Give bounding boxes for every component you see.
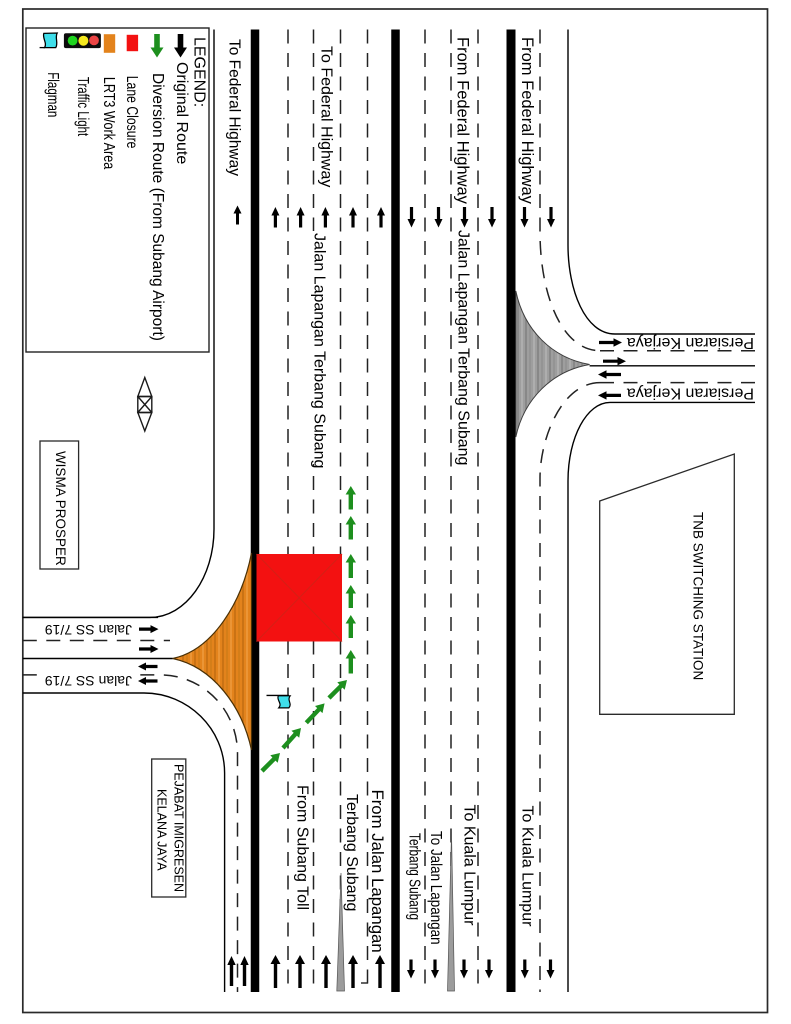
- svg-text:From Federal Highway: From Federal Highway: [454, 37, 472, 205]
- svg-text:Terbang Subang: Terbang Subang: [406, 833, 423, 920]
- svg-text:Lane Closure: Lane Closure: [123, 76, 141, 149]
- svg-text:To Federal Highway: To Federal Highway: [318, 46, 335, 187]
- svg-text:Diversion Route (From Subang A: Diversion Route (From Subang Airport): [149, 73, 166, 341]
- svg-text:Terbang Subang: Terbang Subang: [343, 794, 360, 911]
- svg-text:From Jalan Lapangan: From Jalan Lapangan: [368, 789, 387, 952]
- svg-text:WISMA PROSPER: WISMA PROSPER: [53, 451, 68, 566]
- svg-text:From Federal Highway: From Federal Highway: [518, 37, 536, 205]
- svg-text:To Kuala Lumpur: To Kuala Lumpur: [461, 804, 478, 926]
- svg-text:PEJABAT IMIGRESEN: PEJABAT IMIGRESEN: [172, 764, 186, 892]
- svg-text:Jalan Lapangan Terbang Subang: Jalan Lapangan Terbang Subang: [455, 230, 472, 465]
- svg-text:Persiaran Kerjaya: Persiaran Kerjaya: [627, 334, 754, 351]
- svg-text:TNB SWITCHING STATION: TNB SWITCHING STATION: [690, 512, 705, 680]
- svg-text:Flagman: Flagman: [44, 72, 61, 117]
- svg-text:Jalan SS 7/19: Jalan SS 7/19: [45, 622, 132, 638]
- svg-text:Jalan SS 7/19: Jalan SS 7/19: [45, 673, 132, 689]
- svg-text:LRT3 Work Area: LRT3 Work Area: [101, 77, 119, 169]
- svg-text:KELANA JAYA: KELANA JAYA: [155, 789, 169, 871]
- svg-text:Jalan Lapangan Terbang Subang: Jalan Lapangan Terbang Subang: [311, 233, 328, 468]
- svg-text:Persiaran Kerjaya: Persiaran Kerjaya: [627, 385, 754, 402]
- svg-text:Traffic Light: Traffic Light: [74, 77, 91, 136]
- svg-text:LEGEND:: LEGEND:: [190, 37, 207, 107]
- svg-text:To Jalan Lapangan: To Jalan Lapangan: [427, 831, 444, 945]
- svg-text:To Federal Highway: To Federal Highway: [225, 39, 242, 176]
- svg-text:Original Route: Original Route: [173, 62, 190, 164]
- svg-text:To Kuala Lumpur: To Kuala Lumpur: [519, 805, 536, 927]
- svg-text:From Subang Toll: From Subang Toll: [294, 785, 311, 910]
